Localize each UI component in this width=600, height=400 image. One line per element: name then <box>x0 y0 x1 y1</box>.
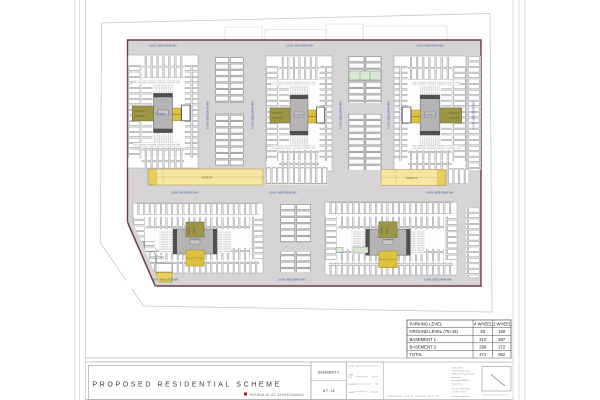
svg-text:TOWER B: TOWER B <box>294 115 305 117</box>
svg-text:DATE: DATE <box>349 391 355 394</box>
svg-text:RAMP UP: RAMP UP <box>202 177 213 180</box>
svg-text:471: 471 <box>479 352 487 357</box>
svg-text:TOWER C: TOWER C <box>425 115 436 117</box>
svg-text:6.00 M. WIDE DRIVE WAY: 6.00 M. WIDE DRIVE WAY <box>388 101 391 129</box>
svg-text:BASEMENT 1: BASEMENT 1 <box>410 337 437 342</box>
svg-text:6.00 M. WIDE DRIVE WAY: 6.00 M. WIDE DRIVE WAY <box>171 192 199 195</box>
svg-text:6.00 M. WIDE DRIVE WAY: 6.00 M. WIDE DRIVE WAY <box>252 101 255 129</box>
svg-text:APURVA AMIN ARCHITECTS: APURVA AMIN ARCHITECTS <box>388 394 440 398</box>
svg-text:272: 272 <box>498 344 506 349</box>
svg-text:6.00 M. WIDE DRIVE WAY: 6.00 M. WIDE DRIVE WAY <box>207 101 210 129</box>
svg-text:6.00 M. WIDE DRIVE WAY: 6.00 M. WIDE DRIVE WAY <box>424 279 452 282</box>
svg-text:6.00 M. WIDE DRIVE WAY: 6.00 M. WIDE DRIVE WAY <box>149 45 177 48</box>
svg-text:682: 682 <box>498 352 506 357</box>
svg-text:BASEMENT 2: BASEMENT 2 <box>410 344 437 349</box>
svg-text:TOWER A: TOWER A <box>156 113 167 116</box>
svg-text:SCALE: SCALE <box>349 383 357 386</box>
svg-text:RAMP UP: RAMP UP <box>407 177 418 180</box>
svg-text:TOWER E: TOWER E <box>383 240 394 242</box>
svg-text:6.00 M. WIDE DRIVE WAY: 6.00 M. WIDE DRIVE WAY <box>340 101 343 129</box>
svg-text:PROPOSED RESIDENTIAL SCHEME: PROPOSED RESIDENTIAL SCHEME <box>93 382 282 389</box>
svg-text:CLIE: CLIE <box>349 366 354 368</box>
svg-text:NO: NO <box>349 377 353 379</box>
svg-text:GROUND LEVEL (75+16): GROUND LEVEL (75+16) <box>410 329 459 334</box>
svg-text:6.00 M. WIDE DRIVE WAY: 6.00 M. WIDE DRIVE WAY <box>269 192 297 195</box>
svg-text:Ahmedabad 380006: Ahmedabad 380006 <box>452 379 469 382</box>
svg-text:6.00 M. WIDE DRIVE WAY: 6.00 M. WIDE DRIVE WAY <box>473 101 476 129</box>
svg-text:Near Sunny Apartment: Near Sunny Apartment <box>452 370 472 373</box>
svg-text:SHIWALIK AT AHMEDABAD: SHIWALIK AT AHMEDABAD <box>250 393 305 397</box>
svg-text:10.04.07: 10.04.07 <box>370 392 379 394</box>
svg-text:6.00 M. WIDE DRIVE WAY: 6.00 M. WIDE DRIVE WAY <box>426 192 454 195</box>
svg-text:TOWER D: TOWER D <box>190 240 201 242</box>
svg-text:Off Subhashchandra Marg: Off Subhashchandra Marg <box>452 373 474 376</box>
svg-text:+91 26752 12013: +91 26752 12013 <box>452 392 467 394</box>
svg-text:Gujarat India: Gujarat India <box>452 382 464 385</box>
svg-text:BASEMENT 2: BASEMENT 2 <box>318 371 339 375</box>
svg-text:PARKING LEVEL: PARKING LEVEL <box>410 322 443 327</box>
svg-text:210: 210 <box>479 337 487 342</box>
svg-text:Ambawadi: Ambawadi <box>452 376 461 379</box>
svg-text:A.T - 16: A.T - 16 <box>323 389 335 393</box>
svg-text:Tel: +91 79 2646 4646: Tel: +91 79 2646 4646 <box>452 389 471 391</box>
svg-text:3/F Toral Villa: 3/F Toral Villa <box>452 366 464 369</box>
svg-text:2 WHEEL: 2 WHEEL <box>493 322 512 327</box>
svg-text:6.00 M. WIDE DRIVE WAY: 6.00 M. WIDE DRIVE WAY <box>278 279 306 282</box>
svg-text:6.00 M. WIDE DRIVE WAY: 6.00 M. WIDE DRIVE WAY <box>151 279 179 282</box>
svg-text:05-10: 05-10 <box>372 377 378 379</box>
svg-text:www.apurvaamin.com: www.apurvaamin.com <box>452 395 471 398</box>
svg-text:4 WHEEL: 4 WHEEL <box>474 322 493 327</box>
svg-text:93: 93 <box>480 329 485 334</box>
svg-text:6.00 M. WIDE DRIVE WAY: 6.00 M. WIDE DRIVE WAY <box>416 45 444 48</box>
svg-text:160: 160 <box>498 329 506 334</box>
svg-text:287: 287 <box>498 337 506 342</box>
svg-text:TOTAL: TOTAL <box>410 352 424 357</box>
svg-text:www.apurvaaminarchitects.com: www.apurvaaminarchitects.com <box>482 394 509 397</box>
svg-text:298: 298 <box>479 344 487 349</box>
svg-text:6.00 M. WIDE DRIVE WAY: 6.00 M. WIDE DRIVE WAY <box>286 45 314 48</box>
